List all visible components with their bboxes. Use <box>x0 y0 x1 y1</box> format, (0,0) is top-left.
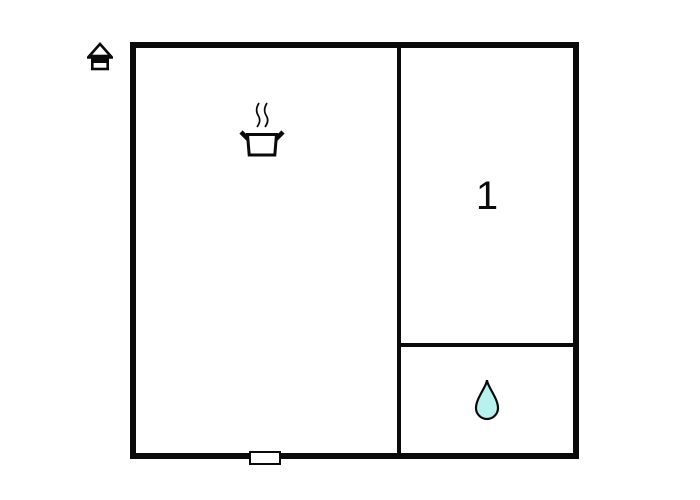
water-drop-shape <box>476 380 498 419</box>
door-marker <box>249 451 281 465</box>
room-1-label: 1 <box>476 176 498 216</box>
water-drop-icon <box>473 378 501 422</box>
room-1: 1 <box>401 48 573 343</box>
house-icon <box>87 42 113 72</box>
floorplan-canvas: 1 <box>0 0 700 500</box>
room-bath <box>401 347 573 453</box>
cooking-pot-icon <box>239 101 285 158</box>
